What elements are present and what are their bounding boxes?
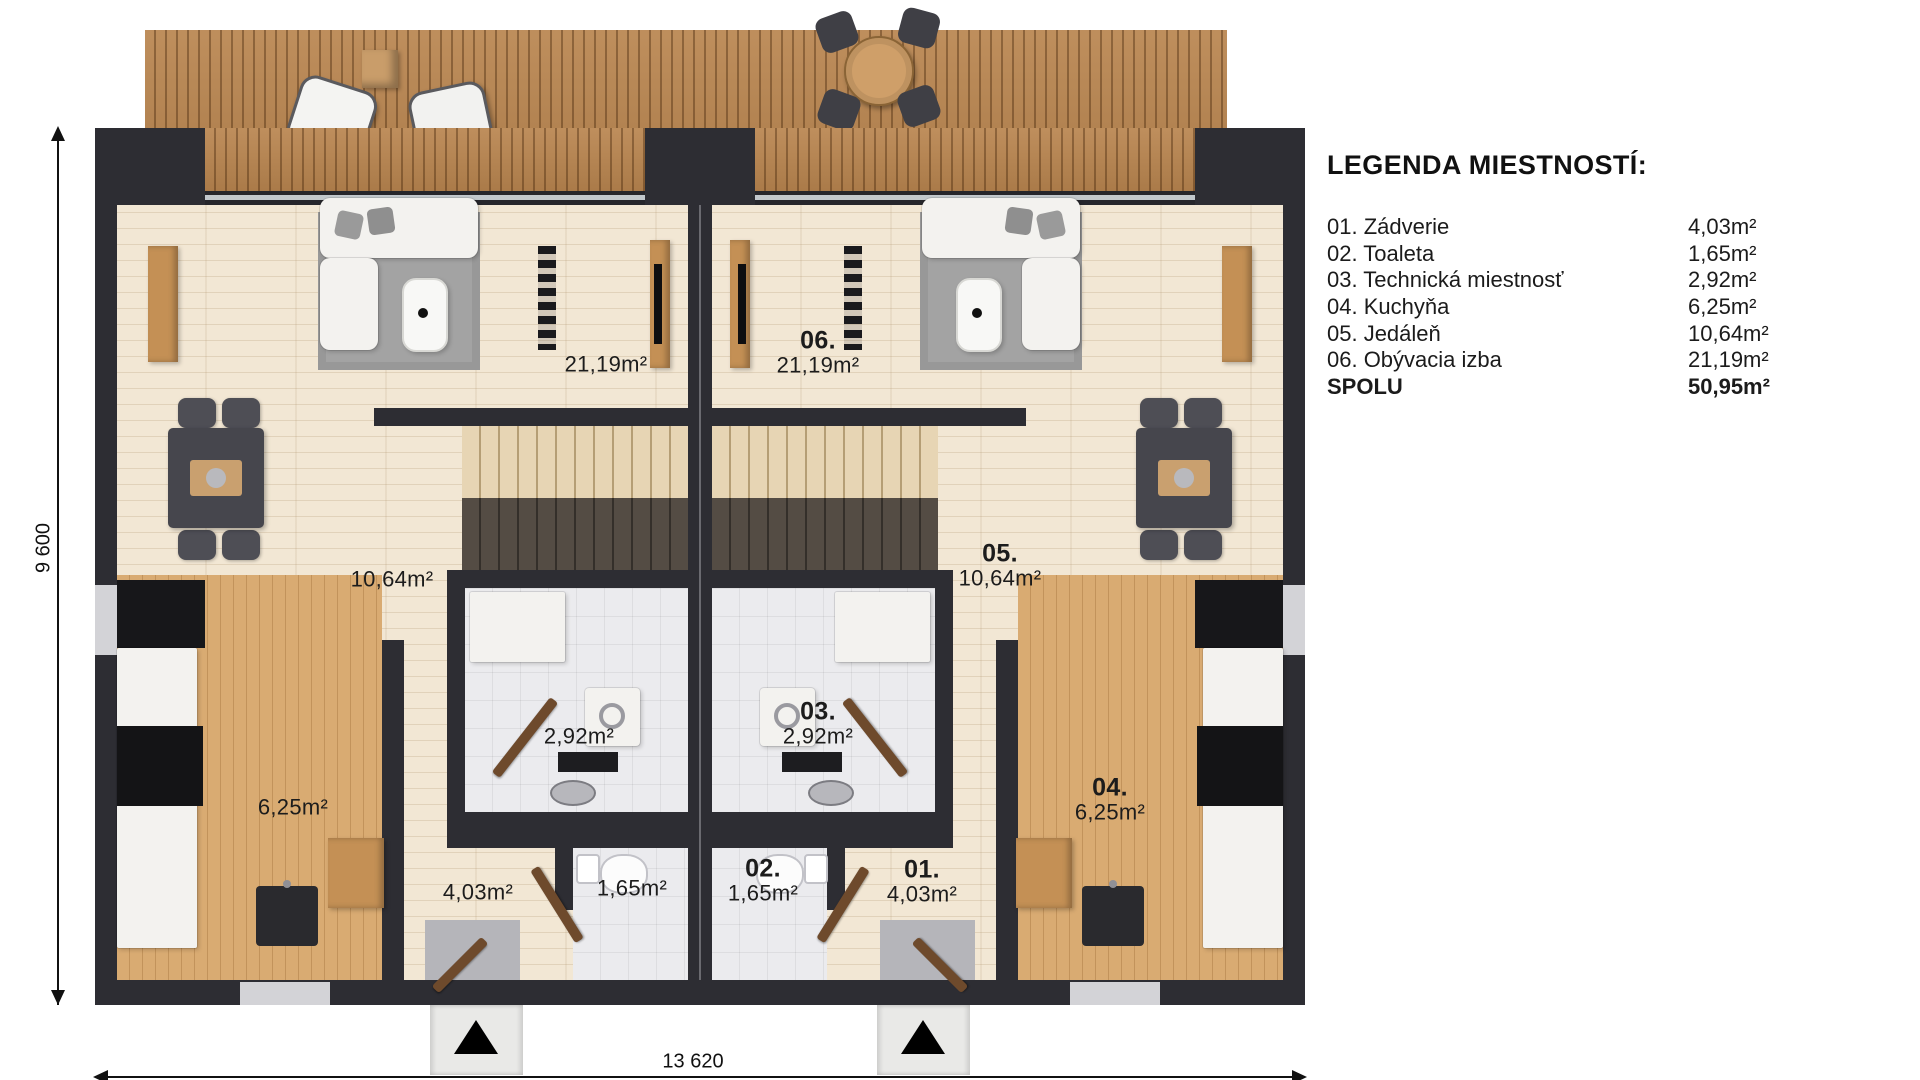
fridge-right <box>1195 580 1283 648</box>
partition-tech-top-left <box>447 570 688 588</box>
room-label-tech-right: 03. 2,92m² <box>783 698 853 747</box>
room-number: 03. <box>783 698 853 724</box>
room-label-living-right: 06. 21,19m² <box>777 327 860 376</box>
toilet-sink-right <box>804 854 828 884</box>
room-label-toilet-left: 1,65m² <box>597 876 667 899</box>
deck-recess-right <box>755 128 1195 191</box>
legend-room-area: 1,65m² <box>1688 241 1756 267</box>
window-right-wall <box>1283 585 1305 655</box>
room-area: 21,19m² <box>777 354 860 377</box>
legend-room-name: 04. Kuchyňa <box>1327 294 1688 320</box>
floor-plan-page: 21,19m² 10,64m² 2,92m² 6,25m² 4,03m² 1,6… <box>0 0 1920 1080</box>
partition-tech-bottom-left <box>447 812 688 848</box>
dimension-line-vertical <box>57 128 59 1005</box>
slat-screen-left <box>538 246 556 350</box>
legend-row: 05. Jedáleň 10,64m² <box>1327 320 1770 347</box>
cooktop-right <box>1197 726 1283 806</box>
room-area: 6,25m² <box>1075 801 1145 824</box>
legend-total-area: 50,95m² <box>1688 374 1770 400</box>
room-number: 02. <box>728 855 798 881</box>
tv-screen-right <box>738 264 746 344</box>
legend-row: 02. Toaleta 1,65m² <box>1327 241 1770 268</box>
dining-chair-icon <box>1184 398 1222 428</box>
room-number: 05. <box>959 540 1042 566</box>
partition-stair-top-left <box>374 408 688 426</box>
staircase-upper-right <box>712 426 938 498</box>
dimension-width-label: 13 620 <box>662 1051 723 1074</box>
legend-rows: 01. Zádverie 4,03m² 02. Toaleta 1,65m² 0… <box>1327 214 1770 400</box>
faucet-left <box>283 880 291 888</box>
legend-row: 01. Zádverie 4,03m² <box>1327 214 1770 241</box>
cushion-icon <box>1004 206 1033 235</box>
staircase-lower-left <box>462 498 688 570</box>
coffee-table-dot-icon <box>972 308 982 318</box>
room-label-dining-left: 10,64m² <box>351 567 434 590</box>
dining-chair-icon <box>1184 530 1222 560</box>
legend-row: 06. Obývacia izba 21,19m² <box>1327 347 1770 374</box>
deck-recess-left <box>205 128 645 191</box>
tech-counter-right <box>835 592 930 662</box>
legend-title: LEGENDA MIESTNOSTÍ: <box>1327 150 1770 181</box>
window-left-wall <box>95 585 117 655</box>
dining-chair-icon <box>178 398 216 428</box>
partition-kitchen-left <box>382 640 404 980</box>
legend-room-area: 10,64m² <box>1688 321 1769 347</box>
partition-tech-top-right <box>712 570 953 588</box>
room-area: 4,03m² <box>887 883 957 906</box>
cushion-icon <box>366 206 395 235</box>
room-label-toilet-right: 02. 1,65m² <box>728 855 798 904</box>
room-number: 01. <box>887 856 957 882</box>
cooktop-left <box>117 726 203 806</box>
pantry-cabinet-right <box>1016 838 1072 908</box>
legend-room-name: 01. Zádverie <box>1327 214 1688 240</box>
kitchen-sink-left <box>256 886 318 946</box>
legend-room-area: 4,03m² <box>1688 214 1756 240</box>
faucet-right <box>1109 880 1117 888</box>
entrance-arrow-right <box>901 1020 945 1054</box>
dining-chair-icon <box>1140 530 1178 560</box>
sofa-chaise-right <box>1022 258 1080 350</box>
staircase-upper-left <box>462 426 688 498</box>
dining-chair-icon <box>178 530 216 560</box>
side-cube-table-icon <box>362 50 398 88</box>
cushion-icon <box>334 210 365 241</box>
partition-tech-bottom-right <box>712 812 953 848</box>
pantry-cabinet-left <box>328 838 384 908</box>
room-number: 04. <box>1075 774 1145 800</box>
room-label-dining-right: 05. 10,64m² <box>959 540 1042 589</box>
legend-room-area: 2,92m² <box>1688 267 1756 293</box>
room-legend: LEGENDA MIESTNOSTÍ: 01. Zádverie 4,03m² … <box>1327 150 1770 400</box>
dining-bowl-icon <box>206 468 226 488</box>
partition-stair-top-right <box>712 408 1026 426</box>
room-label-kitchen-right: 04. 6,25m² <box>1075 774 1145 823</box>
room-number: 06. <box>777 327 860 353</box>
legend-row-total: SPOLU 50,95m² <box>1327 374 1770 401</box>
window-bottom-right <box>1070 982 1160 1005</box>
dining-chair-icon <box>1140 398 1178 428</box>
party-wall-joint <box>699 205 701 980</box>
legend-room-name: 05. Jedáleň <box>1327 321 1688 347</box>
partition-kitchen-right <box>996 640 1018 980</box>
room-area: 2,92m² <box>783 725 853 748</box>
sofa-chaise-left <box>320 258 378 350</box>
legend-room-area: 6,25m² <box>1688 294 1756 320</box>
legend-row: 03. Technická miestnosť 2,92m² <box>1327 267 1770 294</box>
room-label-hall-right: 01. 4,03m² <box>887 856 957 905</box>
tv-screen-left <box>654 264 662 344</box>
window-bottom-left <box>240 982 330 1005</box>
room-area: 10,64m² <box>959 567 1042 590</box>
dimension-line-horizontal <box>95 1076 1305 1078</box>
sideboard-left <box>148 246 178 362</box>
coffee-table-dot-icon <box>418 308 428 318</box>
entrance-arrow-left <box>454 1020 498 1054</box>
dimension-arrow-up-icon <box>51 126 65 141</box>
kitchen-sink-right <box>1082 886 1144 946</box>
legend-total-name: SPOLU <box>1327 374 1688 400</box>
dining-chair-icon <box>222 398 260 428</box>
legend-room-name: 02. Toaleta <box>1327 241 1688 267</box>
tech-mat-right <box>782 752 842 772</box>
room-area: 1,65m² <box>728 882 798 905</box>
floor-drain-left <box>550 780 596 806</box>
floor-drain-right <box>808 780 854 806</box>
cushion-icon <box>1036 210 1067 241</box>
room-label-hall-left: 4,03m² <box>443 880 513 903</box>
staircase-lower-right <box>712 498 938 570</box>
dimension-arrow-left-icon <box>93 1070 108 1080</box>
legend-room-name: 03. Technická miestnosť <box>1327 267 1688 293</box>
sideboard-right <box>1222 246 1252 362</box>
legend-room-name: 06. Obývacia izba <box>1327 347 1688 373</box>
dimension-arrow-down-icon <box>51 990 65 1005</box>
dimension-arrow-right-icon <box>1292 1070 1307 1080</box>
fridge-left <box>117 580 205 648</box>
dimension-height-label: 9 600 <box>33 523 56 573</box>
dining-bowl-icon <box>1174 468 1194 488</box>
legend-row: 04. Kuchyňa 6,25m² <box>1327 294 1770 321</box>
partition-tech-side-right <box>935 570 953 848</box>
dining-chair-icon <box>222 530 260 560</box>
partition-tech-side-left <box>447 570 465 848</box>
room-label-tech-left: 2,92m² <box>544 724 614 747</box>
legend-room-area: 21,19m² <box>1688 347 1769 373</box>
room-label-living-left: 21,19m² <box>565 352 648 375</box>
tech-counter-left <box>470 592 565 662</box>
room-label-kitchen-left: 6,25m² <box>258 795 328 818</box>
tech-mat-left <box>558 752 618 772</box>
